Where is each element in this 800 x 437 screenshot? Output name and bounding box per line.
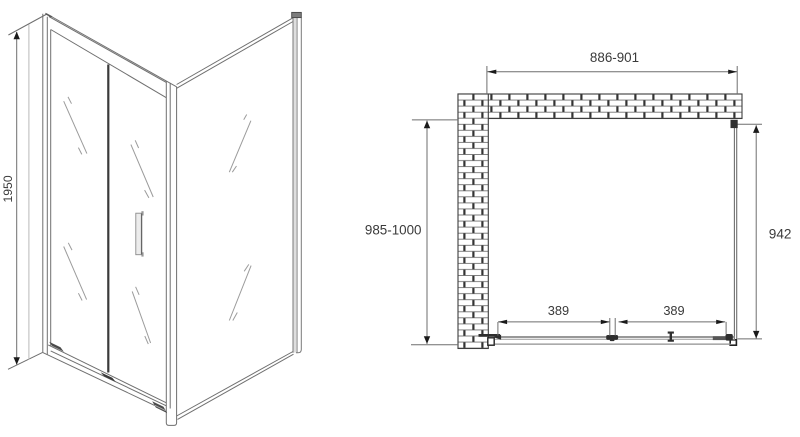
- svg-text:942: 942: [769, 227, 792, 242]
- svg-text:389: 389: [548, 303, 569, 318]
- svg-text:886-901: 886-901: [590, 50, 639, 65]
- svg-text:389: 389: [663, 303, 684, 318]
- svg-text:1950: 1950: [1, 175, 15, 202]
- svg-text:985-1000: 985-1000: [365, 223, 422, 238]
